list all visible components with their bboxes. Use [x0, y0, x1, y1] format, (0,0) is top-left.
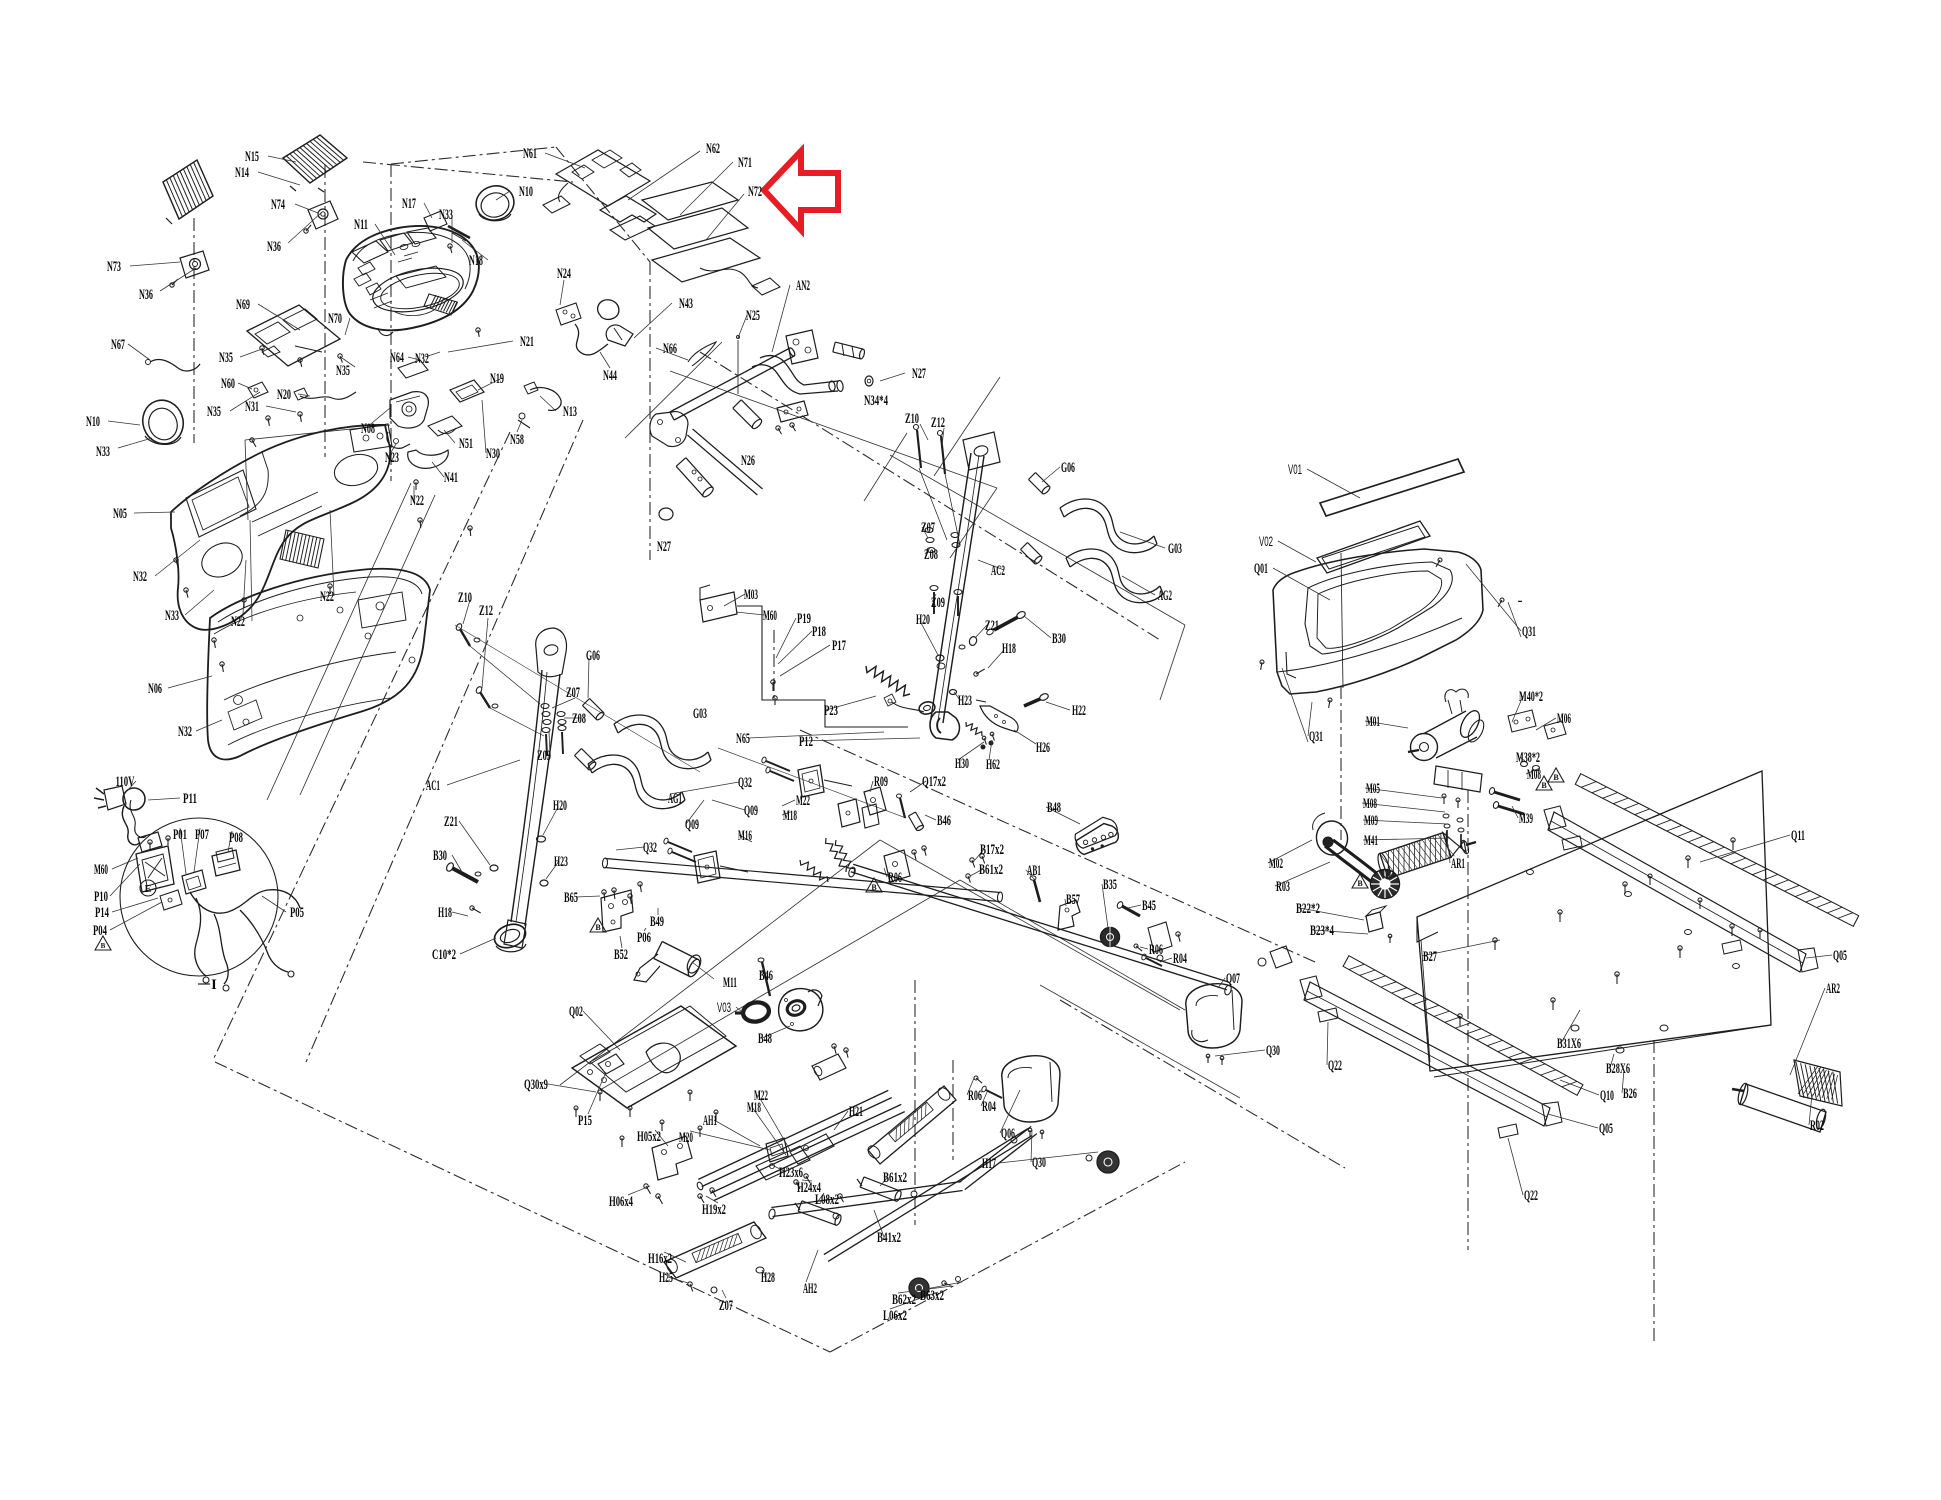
svg-text:Q31: Q31 — [1309, 729, 1323, 745]
svg-text:M16: M16 — [738, 828, 752, 844]
svg-text:M06: M06 — [1557, 711, 1571, 727]
svg-text:Z09: Z09 — [537, 748, 551, 764]
svg-text:M18: M18 — [783, 808, 797, 824]
svg-text:N32: N32 — [178, 724, 192, 740]
svg-text:N33: N33 — [165, 608, 179, 624]
svg-text:N32: N32 — [415, 351, 429, 367]
svg-text:Z09: Z09 — [931, 595, 945, 611]
svg-text:B: B — [871, 883, 877, 892]
svg-text:H62: H62 — [986, 757, 1000, 773]
svg-text:I: I — [211, 977, 217, 993]
svg-text:M08: M08 — [1363, 796, 1377, 812]
svg-text:Q09: Q09 — [744, 803, 758, 819]
svg-text:P11: P11 — [183, 791, 197, 807]
svg-text:N66: N66 — [663, 341, 677, 357]
svg-text:B65: B65 — [564, 890, 578, 906]
svg-text:N41: N41 — [444, 470, 458, 486]
svg-text:H23: H23 — [554, 854, 568, 870]
svg-text:B: B — [595, 923, 601, 932]
svg-text:N43: N43 — [679, 296, 693, 312]
svg-text:G03: G03 — [693, 706, 707, 722]
svg-text:P05: P05 — [290, 905, 304, 921]
svg-text:P12: P12 — [799, 734, 813, 750]
svg-text:P17: P17 — [832, 638, 846, 654]
svg-text:AB1: AB1 — [1027, 863, 1041, 879]
svg-text:Q32: Q32 — [643, 840, 657, 856]
svg-text:N65: N65 — [736, 731, 750, 747]
svg-text:B45: B45 — [1142, 898, 1156, 914]
svg-text:N06: N06 — [148, 681, 162, 697]
svg-text:H16x2: H16x2 — [648, 1251, 672, 1267]
svg-text:AH1: AH1 — [703, 1113, 717, 1129]
svg-text:B26: B26 — [1623, 1086, 1637, 1102]
svg-text:B30: B30 — [433, 848, 447, 864]
svg-text:M09: M09 — [1364, 813, 1378, 829]
svg-text:L08x2: L08x2 — [815, 1192, 839, 1208]
svg-text:L06x2: L06x2 — [883, 1308, 907, 1324]
svg-text:N58: N58 — [510, 432, 524, 448]
svg-text:H17: H17 — [982, 1156, 996, 1172]
svg-text:V02: V02 — [1259, 533, 1273, 549]
svg-text:R09: R09 — [874, 774, 888, 790]
svg-text:V01: V01 — [1288, 461, 1302, 477]
svg-text:M01: M01 — [1366, 714, 1380, 730]
svg-text:N67: N67 — [111, 337, 125, 353]
svg-text:B35: B35 — [1103, 877, 1117, 893]
svg-text:Q22: Q22 — [1524, 1188, 1538, 1204]
svg-text:B49: B49 — [650, 914, 664, 930]
svg-text:N21: N21 — [520, 334, 534, 350]
svg-text:N30: N30 — [486, 446, 500, 462]
svg-text:Q11: Q11 — [1791, 828, 1805, 844]
svg-text:N19: N19 — [490, 371, 504, 387]
svg-text:N35: N35 — [207, 404, 221, 420]
svg-text:B: B — [101, 942, 106, 950]
svg-text:P18: P18 — [812, 624, 826, 640]
svg-text:H18: H18 — [1002, 641, 1016, 657]
svg-text:N22: N22 — [410, 493, 424, 509]
svg-text:Q05: Q05 — [1599, 1121, 1613, 1137]
svg-text:Z10: Z10 — [905, 411, 919, 427]
svg-text:N31: N31 — [245, 399, 259, 415]
svg-text:B62x2: B62x2 — [892, 1292, 916, 1308]
svg-text:R04: R04 — [1173, 951, 1187, 967]
svg-text:AN2: AN2 — [796, 278, 810, 294]
svg-text:Q30x9: Q30x9 — [524, 1077, 548, 1093]
svg-text:B31X6: B31X6 — [1557, 1036, 1581, 1052]
svg-text:AH2: AH2 — [803, 1281, 817, 1297]
svg-text:N74: N74 — [271, 197, 285, 213]
svg-text:Z21: Z21 — [985, 618, 999, 634]
svg-text:H18: H18 — [438, 905, 452, 921]
svg-text:N44: N44 — [603, 368, 617, 384]
svg-text:B23*4: B23*4 — [1310, 923, 1334, 939]
svg-text:Q07: Q07 — [1226, 971, 1240, 987]
svg-text:Z12: Z12 — [931, 415, 945, 431]
svg-text:P04: P04 — [93, 923, 107, 939]
svg-text:Z12: Z12 — [479, 603, 493, 619]
svg-text:Q06: Q06 — [1001, 1126, 1015, 1142]
svg-text:-: - — [1518, 593, 1523, 609]
svg-text:P14: P14 — [95, 905, 109, 921]
svg-text:N60: N60 — [221, 376, 235, 392]
svg-text:M11: M11 — [723, 975, 737, 991]
svg-text:B17x2: B17x2 — [980, 842, 1004, 858]
svg-text:B61x2: B61x2 — [979, 862, 1003, 878]
svg-text:V03: V03 — [717, 999, 731, 1015]
svg-text:Q17x2: Q17x2 — [922, 774, 946, 790]
svg-text:P08: P08 — [229, 830, 243, 846]
svg-text:H26: H26 — [1036, 740, 1050, 756]
svg-text:N34*4: N34*4 — [864, 393, 888, 409]
svg-text:N62: N62 — [706, 141, 720, 157]
svg-text:N27: N27 — [912, 366, 926, 382]
svg-text:B28X6: B28X6 — [1606, 1061, 1630, 1077]
svg-text:N61: N61 — [523, 146, 537, 162]
svg-text:M60: M60 — [763, 608, 777, 624]
svg-text:M20: M20 — [679, 1130, 693, 1146]
svg-text:B61x2: B61x2 — [883, 1170, 907, 1186]
svg-text:N10: N10 — [86, 414, 100, 430]
svg-text:Q01: Q01 — [1254, 561, 1268, 577]
svg-text:H28: H28 — [761, 1270, 775, 1286]
svg-text:N33: N33 — [96, 444, 110, 460]
svg-text:N22: N22 — [320, 589, 334, 605]
svg-text:N71: N71 — [738, 155, 752, 171]
svg-text:N73: N73 — [107, 259, 121, 275]
svg-text:N26: N26 — [741, 453, 755, 469]
svg-text:M08: M08 — [1527, 767, 1541, 783]
svg-text:N27: N27 — [657, 539, 671, 555]
svg-text:N36: N36 — [139, 287, 153, 303]
svg-text:N69: N69 — [236, 297, 250, 313]
svg-text:B52: B52 — [614, 947, 628, 963]
svg-text:P19: P19 — [797, 611, 811, 627]
svg-text:B48: B48 — [1047, 800, 1061, 816]
svg-text:Z08: Z08 — [924, 547, 938, 563]
svg-text:B48: B48 — [758, 1031, 772, 1047]
svg-text:Z07: Z07 — [921, 520, 935, 536]
svg-text:B63x2: B63x2 — [920, 1288, 944, 1304]
svg-text:E: E — [145, 884, 152, 895]
svg-text:P06: P06 — [637, 930, 651, 946]
svg-text:B: B — [1541, 781, 1547, 790]
svg-text:M05: M05 — [1366, 781, 1380, 797]
svg-text:Z21: Z21 — [444, 814, 458, 830]
svg-text:Z07: Z07 — [719, 1298, 733, 1314]
svg-text:Q30: Q30 — [1266, 1043, 1280, 1059]
svg-text:P07: P07 — [195, 827, 209, 843]
svg-text:P15: P15 — [578, 1113, 592, 1129]
svg-text:C10*2: C10*2 — [432, 947, 456, 963]
svg-text:N10: N10 — [519, 184, 533, 200]
svg-text:N14: N14 — [235, 165, 249, 181]
svg-text:M60: M60 — [94, 862, 108, 878]
svg-text:N25: N25 — [746, 308, 760, 324]
svg-text:AC2: AC2 — [991, 563, 1005, 579]
svg-text:H06x4: H06x4 — [609, 1194, 633, 1210]
svg-text:R06: R06 — [968, 1088, 982, 1104]
svg-text:AG2: AG2 — [1158, 588, 1172, 604]
svg-text:110V: 110V — [116, 774, 135, 790]
svg-text:N18: N18 — [469, 253, 483, 269]
svg-text:Q02: Q02 — [569, 1004, 583, 1020]
svg-text:N72: N72 — [748, 184, 762, 200]
svg-text:H25: H25 — [659, 1270, 673, 1286]
svg-text:N36: N36 — [267, 239, 281, 255]
svg-text:Q09: Q09 — [685, 817, 699, 833]
svg-text:B46: B46 — [937, 813, 951, 829]
svg-text:B57: B57 — [1066, 892, 1080, 908]
svg-text:Q32: Q32 — [738, 775, 752, 791]
svg-text:H23: H23 — [958, 693, 972, 709]
svg-text:B22*2: B22*2 — [1296, 901, 1320, 917]
svg-text:Z08: Z08 — [572, 711, 586, 727]
svg-text:Q31: Q31 — [1522, 624, 1536, 640]
svg-text:Q10: Q10 — [1600, 1088, 1614, 1104]
svg-text:N17: N17 — [402, 196, 416, 212]
svg-text:N08: N08 — [361, 421, 375, 437]
svg-text:R03: R03 — [1276, 879, 1290, 895]
svg-text:N23: N23 — [385, 450, 399, 466]
svg-text:H05x2: H05x2 — [637, 1129, 661, 1145]
svg-text:N35: N35 — [336, 363, 350, 379]
svg-text:H21: H21 — [849, 1104, 863, 1120]
svg-text:M22: M22 — [796, 793, 810, 809]
svg-text:N20: N20 — [277, 387, 291, 403]
svg-text:AR1: AR1 — [1451, 856, 1465, 872]
svg-text:N05: N05 — [113, 506, 127, 522]
svg-text:H23x6: H23x6 — [779, 1165, 803, 1181]
svg-text:R06: R06 — [1149, 942, 1163, 958]
svg-text:P01: P01 — [173, 827, 187, 843]
svg-text:N24: N24 — [557, 266, 571, 282]
svg-text:R06: R06 — [888, 870, 902, 886]
svg-text:AR2: AR2 — [1826, 981, 1840, 997]
svg-text:M02: M02 — [1269, 856, 1283, 872]
svg-text:AC1: AC1 — [426, 778, 440, 794]
svg-text:B: B — [1357, 879, 1363, 888]
svg-text:M40*2: M40*2 — [1519, 689, 1543, 705]
svg-text:P10: P10 — [94, 889, 108, 905]
svg-text:H20: H20 — [553, 798, 567, 814]
svg-text:H19x2: H19x2 — [702, 1202, 726, 1218]
svg-text:M41: M41 — [1364, 833, 1378, 849]
svg-text:M03: M03 — [744, 587, 758, 603]
svg-text:N64: N64 — [390, 350, 404, 366]
svg-text:B41x2: B41x2 — [877, 1230, 901, 1246]
svg-text:Z07: Z07 — [566, 685, 580, 701]
svg-text:H22: H22 — [1072, 703, 1086, 719]
svg-text:Q22: Q22 — [1328, 1058, 1342, 1074]
svg-text:N22: N22 — [231, 614, 245, 630]
svg-text:M38*2: M38*2 — [1516, 750, 1540, 766]
svg-text:M39: M39 — [1519, 811, 1533, 827]
svg-text:B30: B30 — [1052, 631, 1066, 647]
svg-text:G06: G06 — [1061, 460, 1075, 476]
svg-text:N70: N70 — [328, 311, 342, 327]
svg-text:P23: P23 — [824, 703, 838, 719]
svg-text:B46: B46 — [759, 968, 773, 984]
svg-text:N33: N33 — [439, 207, 453, 223]
svg-text:AG1: AG1 — [668, 791, 682, 807]
svg-text:H30: H30 — [955, 756, 969, 772]
svg-text:Z10: Z10 — [458, 590, 472, 606]
svg-text:H20: H20 — [916, 612, 930, 628]
svg-text:N15: N15 — [245, 149, 259, 165]
svg-text:N32: N32 — [133, 569, 147, 585]
svg-text:B: B — [1553, 773, 1559, 782]
svg-text:G06: G06 — [586, 648, 600, 664]
svg-text:N13: N13 — [563, 404, 577, 420]
svg-text:Q05: Q05 — [1833, 948, 1847, 964]
svg-text:N35: N35 — [219, 350, 233, 366]
svg-text:R04: R04 — [982, 1099, 996, 1115]
svg-text:R02: R02 — [1810, 1118, 1824, 1134]
svg-text:N51: N51 — [459, 436, 473, 452]
svg-text:B27: B27 — [1423, 949, 1437, 965]
svg-text:G03: G03 — [1168, 541, 1182, 557]
svg-text:N11: N11 — [354, 217, 368, 233]
svg-text:M18: M18 — [747, 1100, 761, 1116]
svg-text:Q30: Q30 — [1032, 1155, 1046, 1171]
